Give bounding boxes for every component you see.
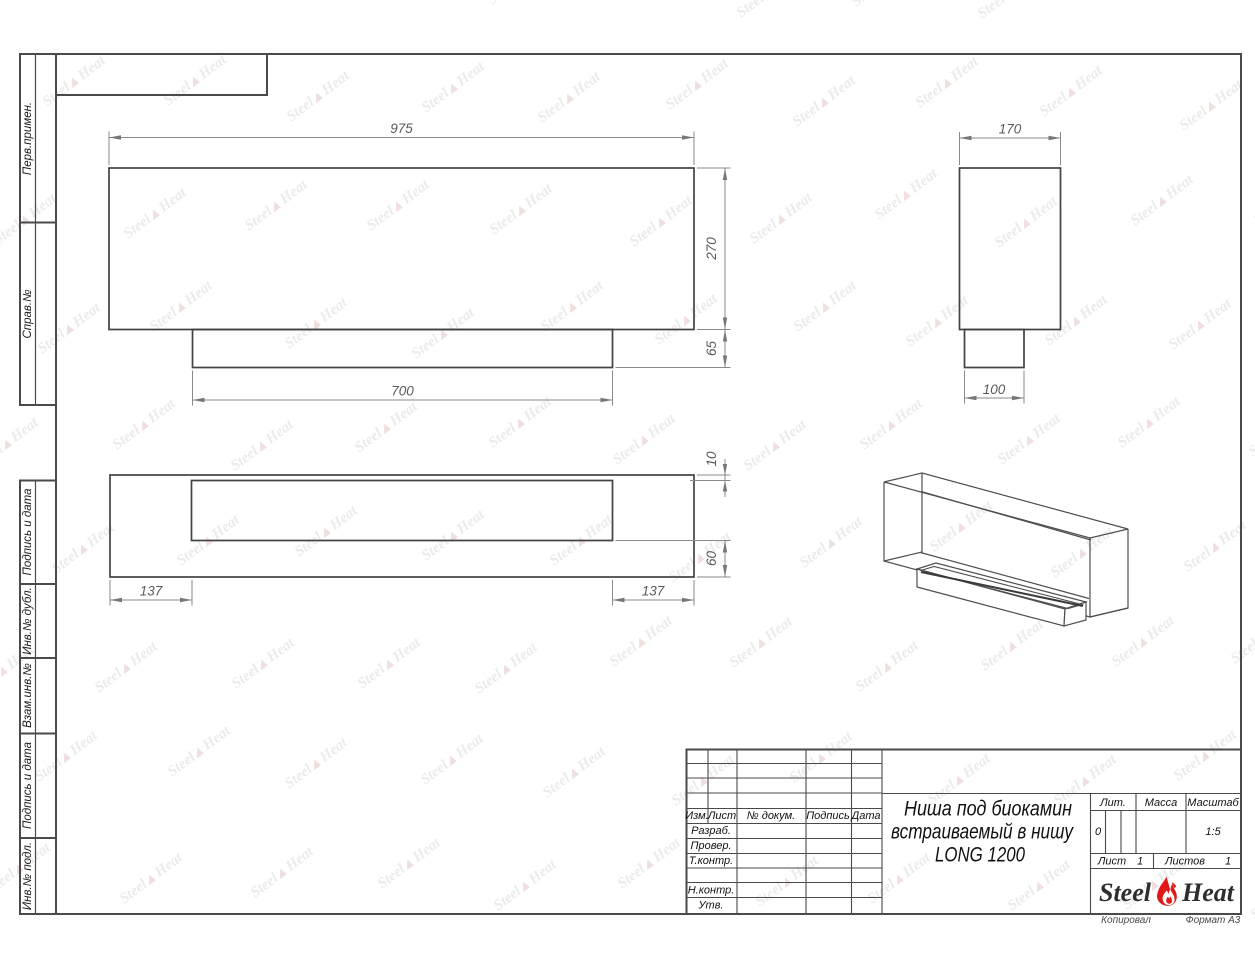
- svg-text:Ниша под биокамин: Ниша под биокамин: [904, 797, 1072, 821]
- svg-text:Копировал: Копировал: [1101, 915, 1151, 926]
- svg-text:Листов: Листов: [1164, 856, 1205, 868]
- svg-text:137: 137: [140, 584, 163, 599]
- svg-text:Масса: Масса: [1145, 797, 1178, 809]
- svg-text:65: 65: [704, 341, 719, 357]
- svg-text:Изм.: Изм.: [685, 810, 708, 822]
- svg-text:100: 100: [983, 382, 1006, 397]
- svg-text:Лист: Лист: [1097, 856, 1126, 868]
- svg-text:137: 137: [642, 584, 665, 599]
- svg-text:Масштаб: Масштаб: [1187, 797, 1239, 809]
- svg-text:Н.контр.: Н.контр.: [688, 885, 735, 897]
- svg-text:975: 975: [390, 121, 413, 136]
- svg-text:Лист: Лист: [707, 810, 736, 822]
- svg-text:60: 60: [704, 551, 719, 567]
- svg-text:Взам.инв.№: Взам.инв.№: [22, 663, 34, 728]
- svg-text:Лит.: Лит.: [1099, 797, 1126, 809]
- svg-text:Подпись и дата: Подпись и дата: [22, 489, 34, 576]
- svg-text:10: 10: [704, 451, 719, 467]
- svg-text:0: 0: [1095, 826, 1102, 838]
- svg-text:Справ.№: Справ.№: [22, 289, 34, 339]
- svg-text:270: 270: [704, 237, 719, 261]
- svg-text:LONG 1200: LONG 1200: [935, 843, 1025, 867]
- svg-text:Провер.: Провер.: [691, 840, 732, 852]
- svg-text:Перв.примен.: Перв.примен.: [22, 102, 34, 175]
- svg-text:Инв.№ подл.: Инв.№ подл.: [22, 842, 34, 910]
- svg-text:1:5: 1:5: [1205, 826, 1221, 838]
- svg-text:1: 1: [1137, 856, 1143, 868]
- svg-text:Формат А3: Формат А3: [1186, 915, 1241, 926]
- svg-text:Т.контр.: Т.контр.: [689, 855, 733, 867]
- svg-text:Подпись: Подпись: [806, 810, 850, 822]
- svg-text:Утв.: Утв.: [698, 900, 724, 912]
- svg-text:Heat: Heat: [1181, 878, 1235, 907]
- svg-text:Дата: Дата: [849, 810, 880, 822]
- svg-text:Подпись и дата: Подпись и дата: [22, 742, 34, 829]
- svg-text:встраиваемый в нишу: встраиваемый в нишу: [891, 820, 1074, 844]
- svg-text:Инв.№ дубл.: Инв.№ дубл.: [22, 587, 34, 655]
- svg-text:Steel: Steel: [1099, 878, 1152, 907]
- svg-text:Разраб.: Разраб.: [691, 825, 731, 837]
- svg-text:№ докум.: № докум.: [747, 810, 795, 822]
- svg-text:700: 700: [391, 384, 414, 399]
- svg-text:1: 1: [1225, 856, 1231, 868]
- svg-text:170: 170: [999, 122, 1022, 137]
